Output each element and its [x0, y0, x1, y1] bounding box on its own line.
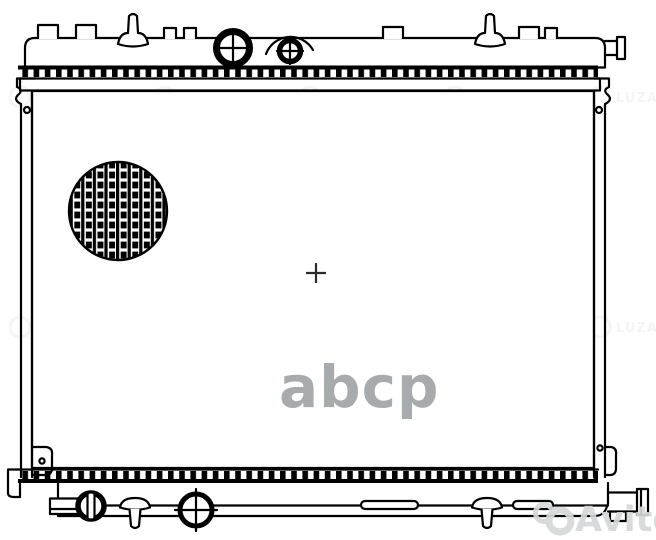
frame-hole	[596, 107, 602, 113]
frame-hole	[597, 445, 602, 450]
filler-cap-icon	[215, 30, 251, 66]
outlet-port-icon	[175, 489, 217, 531]
avito-watermark-text: Avito	[575, 500, 656, 540]
top-tank-body	[25, 38, 605, 68]
tank-slot	[361, 501, 418, 509]
radiator-drawing-svg: LUZAR	[0, 0, 656, 540]
right-bottom-lug	[605, 447, 616, 475]
product-image: LUZAR	[0, 0, 656, 540]
mounting-stud-icon	[118, 14, 148, 47]
frame-hole	[24, 107, 30, 113]
top-core-gasket-strip	[18, 66, 598, 78]
right-side-frame	[594, 79, 616, 478]
top-tank	[25, 14, 625, 68]
frame-hole	[39, 458, 44, 463]
mounting-stud-icon	[475, 14, 505, 47]
mounting-pin-icon	[120, 498, 150, 528]
core-mesh-detail-circle	[69, 162, 167, 260]
top-header-plate	[20, 79, 600, 91]
mounting-pin-icon	[472, 498, 502, 528]
abcp-watermark-text: abcp	[279, 353, 440, 421]
top-right-stub-pipe	[605, 37, 625, 59]
